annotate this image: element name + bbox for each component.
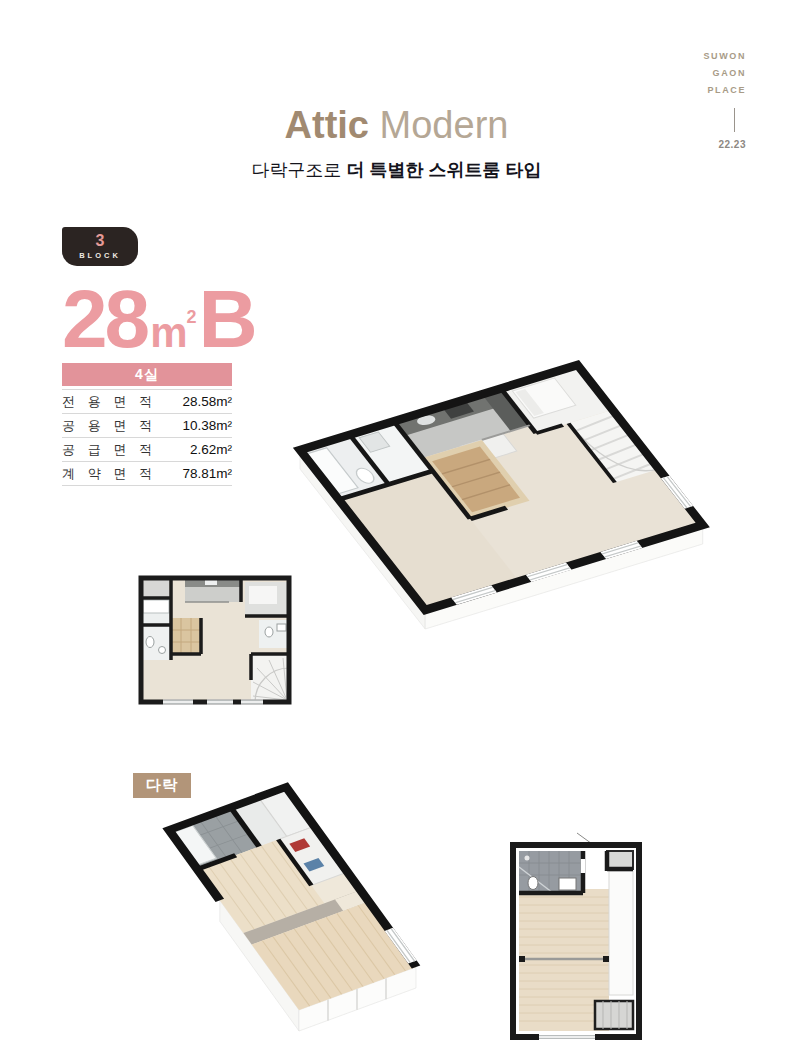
area-value: 10.38m²	[152, 418, 232, 433]
table-row: 공 급 면 적 2.62m²	[62, 438, 232, 462]
block-number: 3	[96, 233, 105, 249]
unit-area-unit: m	[150, 309, 187, 357]
brochure-page: SUWON GAON PLACE 22.23 Attic Modern 다락구조…	[0, 0, 793, 1061]
unit-area-superscript: 2	[187, 307, 197, 328]
rooms-count-banner: 4실	[62, 363, 232, 386]
unit-type-name: 28 m 2 B	[62, 272, 232, 356]
area-label: 계 약 면 적	[62, 465, 152, 483]
block-label: BLOCK	[79, 251, 121, 260]
area-label: 공 급 면 적	[62, 441, 152, 459]
page-title: Attic Modern	[0, 103, 793, 147]
unit-type-letter: B	[199, 272, 256, 366]
attic-3d-floorplan	[158, 775, 460, 1055]
header: Attic Modern 다락구조로 더 특별한 스위트룸 타입	[0, 103, 793, 182]
subtitle-regular: 다락구조로	[251, 160, 346, 180]
page-title-primary: Attic	[285, 104, 369, 146]
subtitle-bold: 더 특별한 스위트룸 타입	[347, 160, 542, 180]
brand-line: SUWON	[704, 48, 747, 65]
area-label: 전 용 면 적	[62, 393, 152, 411]
unit-info-panel: 3 BLOCK 28 m 2 B 4실 전 용 면 적 28.58m² 공 용 …	[62, 227, 232, 486]
area-value: 2.62m²	[152, 442, 232, 457]
area-value: 78.81m²	[152, 466, 232, 481]
unit-area-number: 28	[62, 279, 147, 359]
area-table: 전 용 면 적 28.58m² 공 용 면 적 10.38m² 공 급 면 적 …	[62, 389, 232, 486]
block-badge: 3 BLOCK	[62, 227, 138, 266]
main-unit-2d-floorplan	[129, 562, 301, 710]
table-row: 전 용 면 적 28.58m²	[62, 389, 232, 414]
area-label: 공 용 면 적	[62, 417, 152, 435]
page-title-secondary: Modern	[380, 104, 509, 146]
page-subtitle: 다락구조로 더 특별한 스위트룸 타입	[0, 158, 793, 182]
main-unit-3d-floorplan	[287, 352, 713, 668]
table-row: 계 약 면 적 78.81m²	[62, 462, 232, 486]
attic-2d-floorplan	[503, 831, 649, 1047]
area-value: 28.58m²	[152, 394, 232, 409]
brand-line: PLACE	[704, 82, 747, 99]
brand-line: GAON	[704, 65, 747, 82]
table-row: 공 용 면 적 10.38m²	[62, 414, 232, 438]
